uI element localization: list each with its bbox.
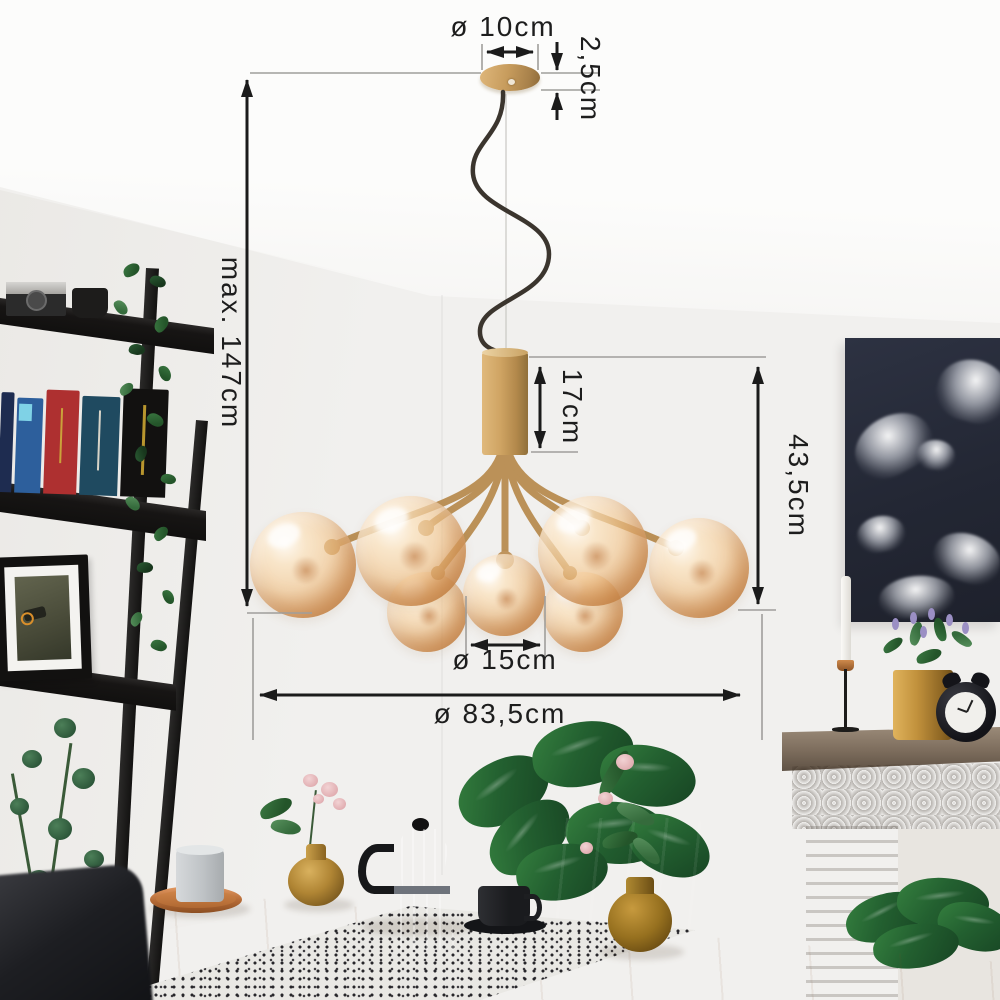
leaf [257,795,294,822]
lavender-bloom [946,614,953,626]
lavender-bloom [910,612,917,624]
flower [580,842,593,854]
leaf [949,628,973,650]
glass-globe [356,496,466,606]
book-spine [14,398,43,494]
glass-globe [538,496,648,606]
lavender-bloom [928,608,935,620]
leaf [118,381,136,397]
leaf [72,768,95,789]
book-spine [43,390,80,495]
chandelier-stem [482,352,528,455]
label-globe-diameter: ø 15cm [452,644,557,675]
jellyfish-artwork [845,338,1000,622]
book-spine [0,392,15,492]
vintage-camera [6,282,66,316]
lavender-bloom [892,618,899,630]
flower [616,754,634,770]
product-photo: ø 10cm 2,5cm max. 147cm 17cm 43,5cm ø 15… [0,0,1000,1000]
moka-pot [360,818,466,932]
lavender-bloom [962,622,969,634]
leaf [132,444,150,463]
candlestick-stem [844,669,847,729]
clock-bell [970,670,992,689]
jellyfish [854,512,908,556]
leaf [128,610,145,628]
vase-neck [306,844,326,860]
alarm-clock [936,682,996,742]
leaf [151,524,170,542]
flower [313,794,324,804]
flower [303,774,318,787]
leaf [145,410,166,430]
fireplace-frieze [792,763,1000,829]
leaf [10,798,29,815]
label-stem-height: 17cm [557,369,588,445]
leaf [148,273,167,291]
leaf [160,472,178,487]
leaf [270,816,303,837]
leaf [149,637,168,654]
dining-chair-foreground [0,863,155,1000]
glass-globe [649,518,749,618]
label-fixture-height: 43,5cm [783,434,814,538]
moka-bottom-chamber [387,894,457,950]
moka-collar [394,886,450,894]
flower [333,798,346,810]
glass-globe [250,512,356,618]
flower-vase-right [608,890,672,952]
leaf [615,797,658,831]
leaf [881,635,905,655]
picture-frame [0,554,92,681]
candlestick-base [832,727,859,732]
leaf [48,818,72,840]
leaf [915,647,943,665]
leaf [112,298,130,317]
ivy-plant [95,262,195,657]
chandelier-canopy [480,64,540,91]
book-label [19,404,33,421]
moka-top-chamber [390,829,454,889]
jellyfish [930,352,1000,431]
leaf [161,588,176,606]
flower-vase-left [288,856,344,906]
flower-bouquet-right [572,748,687,888]
leaf [121,261,141,278]
pillar-candle [176,849,224,902]
vase-neck [626,877,654,894]
leaf [631,833,664,868]
taper-candle [841,576,851,662]
espresso-cup [478,886,530,926]
leaf [151,314,172,335]
flower [321,782,338,797]
leaf [124,494,142,513]
leaf [22,750,42,768]
leaf [128,342,146,357]
glass-globe [463,554,545,636]
leaf [158,364,173,382]
lavender-bloom [920,626,927,638]
leaf [136,561,154,575]
jellyfish [916,438,956,471]
leaf [54,718,76,738]
flower [598,792,613,805]
book-title-text [59,408,63,463]
moka-handle [358,844,394,894]
